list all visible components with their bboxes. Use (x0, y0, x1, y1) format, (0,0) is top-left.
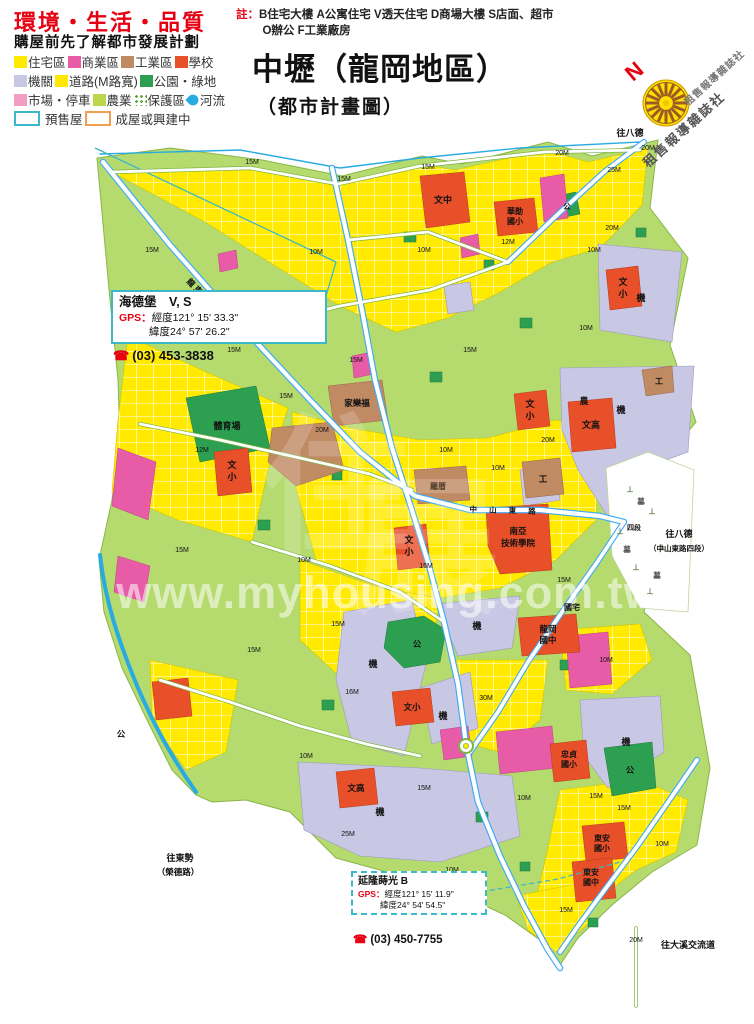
map-subtitle: （都市計畫圖） (257, 92, 404, 119)
legend-item-label: 預售屋 (45, 109, 83, 128)
brand-slogan-sub: 購屋前先了解都市發展計劃 (14, 31, 200, 52)
color-swatch (14, 56, 27, 68)
legend-item-label: 道路(M路寬) (69, 71, 138, 90)
map-label: 15M (247, 647, 261, 654)
callout-gps-lat: 緯度24° 54' 54.5" (358, 900, 480, 911)
map-label: 工 (655, 377, 663, 386)
map-label: 15M (417, 785, 431, 792)
legend-item-label: 機關 (28, 71, 53, 90)
legend-item: 市場・停車 (14, 90, 91, 109)
map-label: 15M (337, 176, 351, 183)
legend-item-label: 住宅區 (28, 52, 66, 71)
map-label: 30M (479, 695, 493, 702)
legend-item-label: 商業區 (82, 52, 120, 71)
color-swatch (68, 56, 81, 68)
map-title: 中壢（龍岡地區） (252, 44, 508, 89)
map-label: 15M (227, 347, 241, 354)
protected-area-swatch (134, 94, 147, 106)
color-swatch (175, 56, 188, 68)
legend-item: 河流 (187, 90, 225, 109)
note-line-2: O辦公 F工業廠房 (236, 23, 666, 39)
map-label: 文 (524, 398, 535, 409)
map-label: ⊥ (633, 563, 640, 572)
map-label: 忠貞 (561, 749, 577, 759)
map-label: 文 (403, 534, 414, 545)
map-label: 東安 (583, 867, 599, 877)
map-label: 15M (419, 563, 433, 570)
gps-label: GPS： (358, 889, 384, 899)
map-label: 20M (541, 437, 555, 444)
map-label: 15M (245, 159, 259, 166)
map-label: 10M (297, 557, 311, 564)
map-label: 10M (599, 657, 613, 664)
legend-row: 機關道路(M路寬)公園・綠地 (14, 71, 227, 90)
map-label: 南亞 (509, 526, 527, 536)
map-label: 15M (463, 347, 477, 354)
color-swatch (121, 56, 134, 68)
color-swatch (140, 75, 153, 87)
map-label: 20M (315, 427, 329, 434)
map-label: 農 (580, 396, 589, 406)
color-swatch (14, 75, 27, 87)
map-label: 10M (417, 247, 431, 254)
color-swatch (93, 94, 106, 106)
map-label: 10M (655, 841, 669, 848)
map-label: 小 (524, 410, 534, 421)
callout-gps-lat: 緯度24° 57' 26.2" (119, 325, 319, 339)
map-label: 15M (421, 164, 435, 171)
map-label: 機 (368, 658, 377, 669)
map-label: 文中 (433, 194, 452, 205)
legend-item-label: 河流 (200, 90, 225, 109)
compass-north-label: N (620, 57, 648, 86)
callout-yanlong: 延隆蒔光 B GPS：經度121° 15' 11.9" 緯度24° 54' 54… (351, 871, 487, 915)
outline-swatch (85, 111, 111, 126)
map-label: 15M (279, 393, 293, 400)
gps-lng: 經度121° 15' 11.9" (384, 889, 453, 899)
map-label: ⊥ (649, 507, 656, 516)
map-label: 15M (617, 805, 631, 812)
legend-item: 機關 (14, 71, 53, 90)
map-label: 國宅 (564, 602, 580, 612)
direction-label: 往東勢 (166, 852, 193, 863)
map-label: 20M (641, 145, 655, 152)
color-swatch (55, 75, 68, 87)
note-label: 註： (236, 9, 259, 21)
map-label: 公 (563, 202, 571, 211)
map-label: 15M (559, 907, 573, 914)
callout-heidelberg-phone: ☎(03) 453-3838 (113, 348, 214, 364)
legend-item: 預售屋 (14, 109, 83, 128)
road-name: 四段 (627, 523, 641, 532)
map-label: 國小 (561, 759, 577, 769)
direction-label: （中山東路四段） (649, 543, 709, 553)
map-label: 10M (579, 325, 593, 332)
outline-swatch (14, 111, 40, 126)
map-label: 機 (375, 806, 384, 817)
callout-name: 延隆蒔光 B (358, 875, 480, 889)
map-label: 小 (226, 471, 236, 482)
map-label: 家樂福 (344, 398, 370, 408)
map-label: 東安 (594, 833, 610, 843)
map-label: 國小 (594, 843, 610, 853)
map-label: 15M (557, 577, 571, 584)
legend-item: 保護區 (134, 90, 186, 109)
map-label: 公 (626, 765, 635, 775)
legend-row: 住宅區商業區工業區學校 (14, 52, 227, 71)
map-label: 墓 (622, 544, 631, 554)
map-label: 12M (195, 447, 209, 454)
legend-item-label: 農業 (107, 90, 132, 109)
map-label: 10M (299, 753, 313, 760)
map-label: 文高 (347, 783, 365, 793)
map-label: 華勛 (507, 206, 523, 216)
map-label: 機 (616, 404, 625, 415)
gps-lng: 經度121° 15' 33.3" (152, 312, 238, 324)
map-label: 10M (309, 249, 323, 256)
map-label: 墓 (636, 496, 645, 506)
legend-item: 住宅區 (14, 52, 66, 71)
map-label: ⊥ (617, 527, 624, 536)
direction-label: （榮德路） (157, 867, 200, 877)
map-label: 15M (145, 247, 159, 254)
compass: N (620, 57, 689, 126)
phone-number: (03) 450-7755 (370, 934, 442, 946)
map-label: ⊥ (647, 587, 654, 596)
map-label: 技術學院 (501, 538, 536, 548)
map-label: 體育場 (213, 420, 240, 431)
legend-item: 農業 (93, 90, 132, 109)
map-label: 機 (621, 736, 630, 747)
map-label: 小 (403, 546, 413, 557)
map-label: 龍岡 (539, 624, 556, 634)
note-text-1: B住宅大樓 A公寓住宅 V透天住宅 D商場大樓 S店面、超市 (259, 9, 554, 21)
legend-item: 道路(M路寬) (55, 71, 138, 90)
direction-label: 往大溪交流道 (661, 939, 715, 950)
map-label: 16M (345, 689, 359, 696)
color-swatch (14, 94, 27, 106)
legend-item-label: 工業區 (135, 52, 173, 71)
map-label: 機 (472, 620, 481, 631)
map-label: 15M (349, 357, 363, 364)
legend-row: 預售屋成屋或興建中 (14, 109, 227, 128)
page: { "header": { "slogan": "環境・生活・品質", "slo… (0, 0, 754, 1024)
map-label: 10M (491, 465, 505, 472)
map-label: 文 (617, 276, 628, 287)
map-label: 15M (331, 621, 345, 628)
callout-yanlong-phone: ☎(03) 450-7755 (353, 932, 443, 946)
map-label: 機 (438, 710, 447, 721)
roundabout (459, 739, 473, 753)
map-label: 工 (539, 474, 548, 484)
legend-item-label: 公園・綠地 (154, 71, 217, 90)
map-label: 機 (636, 292, 645, 303)
direction-label: 往八德 (665, 528, 692, 539)
map-label: 12M (501, 239, 515, 246)
legend-item-label: 成屋或興建中 (116, 109, 191, 128)
map-label: 墓 (652, 570, 661, 580)
legend-item-label: 學校 (189, 52, 214, 71)
map-label: 羅厝 (430, 481, 446, 491)
map-label: 10M (587, 247, 601, 254)
map-label: 20M (629, 937, 643, 944)
map-label: 20M (555, 150, 569, 157)
legend-item-label: 保護區 (148, 90, 186, 109)
map-label: 10M (439, 447, 453, 454)
map-label: 20M (605, 225, 619, 232)
map-label: 小 (617, 288, 627, 299)
legend-item: 學校 (175, 52, 214, 71)
map-label: 25M (341, 831, 355, 838)
map-label: 國中 (583, 877, 599, 887)
legend-row: 市場・停車農業保護區河流 (14, 90, 227, 109)
river-swatch (185, 92, 200, 107)
callout-name: 海德堡 V, S (119, 294, 319, 311)
phone-icon: ☎ (113, 348, 129, 363)
map-label: 15M (175, 547, 189, 554)
legend-item: 公園・綠地 (140, 71, 217, 90)
map-note: 註：B住宅大樓 A公寓住宅 V透天住宅 D商場大樓 S店面、超市 O辦公 F工業… (236, 7, 666, 39)
legend-item: 工業區 (121, 52, 173, 71)
map-label: 文高 (581, 419, 600, 430)
map-label: 10M (517, 795, 531, 802)
legend-item-label: 市場・停車 (28, 90, 91, 109)
direction-label: 往八德 (616, 127, 643, 138)
map-label: 25M (607, 167, 621, 174)
legend-item: 成屋或興建中 (85, 109, 191, 128)
callout-gps-lng: GPS：經度121° 15' 11.9" (358, 889, 480, 900)
map-label: 公 (117, 729, 126, 739)
phone-number: (03) 453-3838 (132, 348, 214, 363)
map-label: 國小 (507, 216, 523, 226)
map-label: 文小 (403, 702, 421, 712)
phone-icon: ☎ (353, 934, 367, 946)
legend-item: 商業區 (68, 52, 120, 71)
map-label: 文 (226, 459, 237, 470)
callout-gps-lng: GPS：經度121° 15' 33.3" (119, 311, 319, 325)
note-line-1: 註：B住宅大樓 A公寓住宅 V透天住宅 D商場大樓 S店面、超市 (236, 7, 666, 23)
map-label: 15M (589, 793, 603, 800)
map-label: 公 (413, 639, 422, 649)
watermark-logo: 展 (350, 464, 500, 632)
map-label: 國中 (539, 635, 556, 645)
callout-heidelberg: 海德堡 V, S GPS：經度121° 15' 33.3" 緯度24° 57' … (111, 290, 327, 344)
legend: 住宅區商業區工業區學校機關道路(M路寬)公園・綠地市場・停車農業保護區河流預售屋… (14, 52, 227, 128)
map-label: ⊥ (627, 485, 634, 494)
gps-label: GPS： (119, 312, 152, 324)
